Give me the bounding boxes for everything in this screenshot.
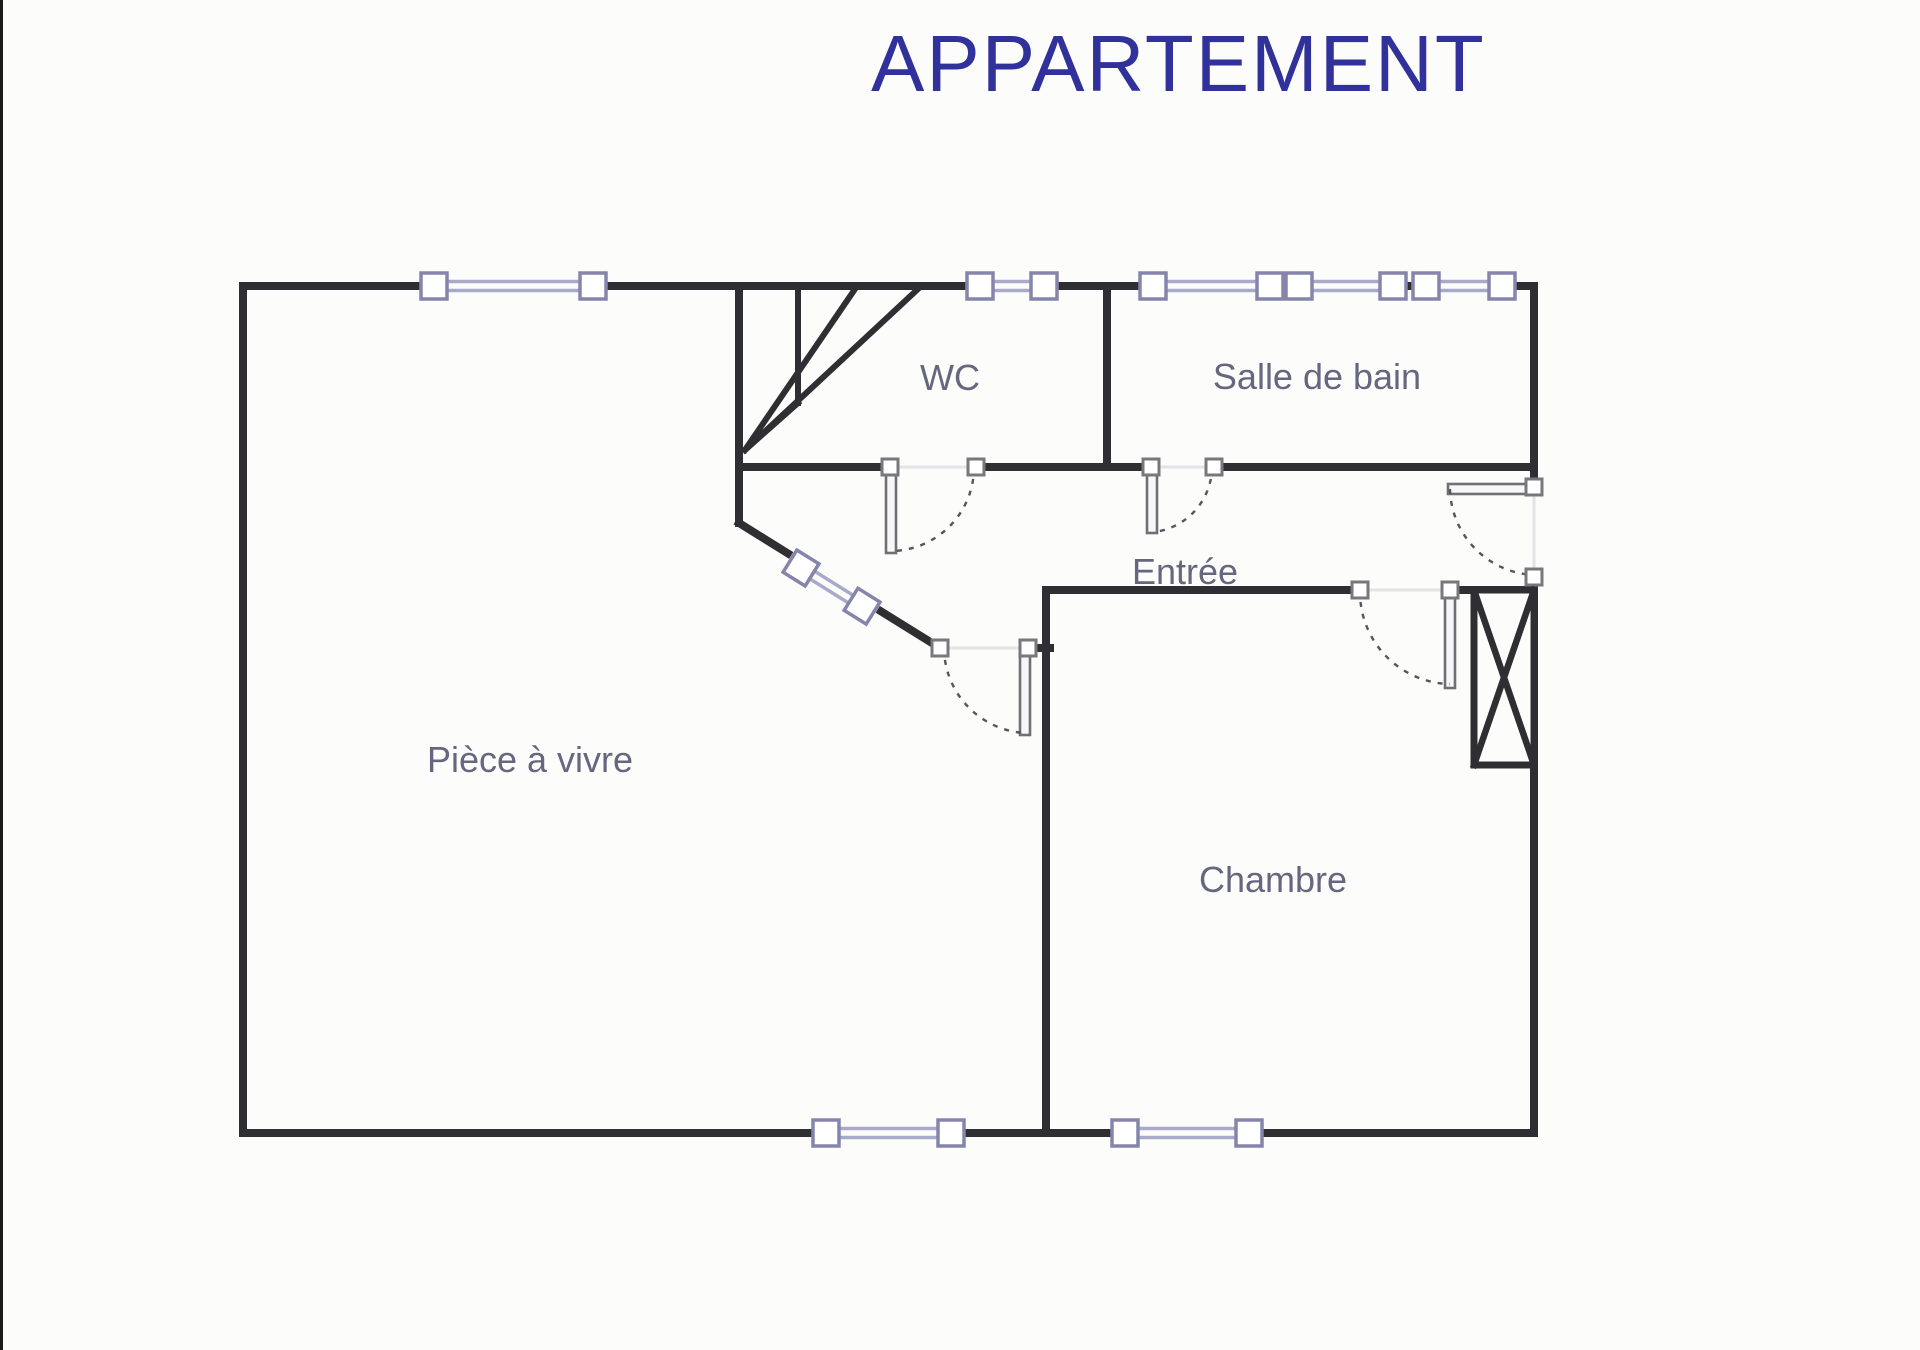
wc-door-jamb: [968, 459, 984, 475]
living-room-door: [932, 640, 1036, 735]
stair-tread: [745, 289, 918, 450]
bedroom-door-leaf: [1445, 598, 1455, 688]
stairs: [745, 289, 918, 450]
living-room-door-swing-arc: [944, 648, 1025, 733]
bedroom-door-jamb: [1352, 582, 1368, 598]
room-label-bathroom: Salle de bain: [1213, 356, 1421, 397]
bathroom-door-jamb: [1206, 459, 1222, 475]
room-label-entry: Entrée: [1132, 551, 1238, 592]
bathroom-door-leaf: [1147, 471, 1157, 533]
room-label-bedroom: Chambre: [1199, 859, 1347, 900]
living-room-door-jamb: [932, 640, 948, 656]
window: [1112, 1120, 1262, 1146]
interior-walls: [739, 286, 1534, 1133]
bedroom-door-swing-arc: [1360, 590, 1450, 684]
room-label-wc: WC: [920, 357, 980, 398]
entry-front-door-swing-arc: [1450, 489, 1534, 575]
wc-door-swing-arc: [894, 467, 974, 551]
wc-door-leaf: [886, 471, 896, 553]
window: [781, 549, 881, 625]
bedroom-door-jamb: [1442, 582, 1458, 598]
closet: [1474, 590, 1534, 765]
bathroom-door-jamb: [1143, 459, 1159, 475]
window: [421, 273, 606, 299]
entry-front-door-leaf: [1448, 484, 1532, 494]
bedroom-door: [1352, 582, 1458, 688]
floor-plan-page: APPARTEMENT: [0, 0, 1920, 1350]
entry-front-door-jamb: [1526, 569, 1542, 585]
bathroom-door-swing-arc: [1154, 467, 1212, 532]
window: [1140, 273, 1283, 299]
entry-front-door-jamb: [1526, 479, 1542, 495]
living-room-door-jamb: [1020, 640, 1036, 656]
outer-walls: [243, 286, 1534, 1133]
window: [813, 1120, 964, 1146]
wc-door-jamb: [882, 459, 898, 475]
bathroom-door: [1143, 459, 1222, 533]
entry-front-door: [1448, 479, 1542, 585]
room-labels: Pièce à vivre WC Salle de bain Entrée Ch…: [427, 356, 1421, 900]
living-room-door-leaf: [1020, 652, 1030, 735]
window: [967, 273, 1057, 299]
window: [1286, 273, 1406, 299]
window: [1413, 273, 1515, 299]
room-label-living: Pièce à vivre: [427, 739, 633, 780]
wc-door: [882, 459, 984, 553]
floor-plan: Pièce à vivre WC Salle de bain Entrée Ch…: [3, 0, 1920, 1350]
